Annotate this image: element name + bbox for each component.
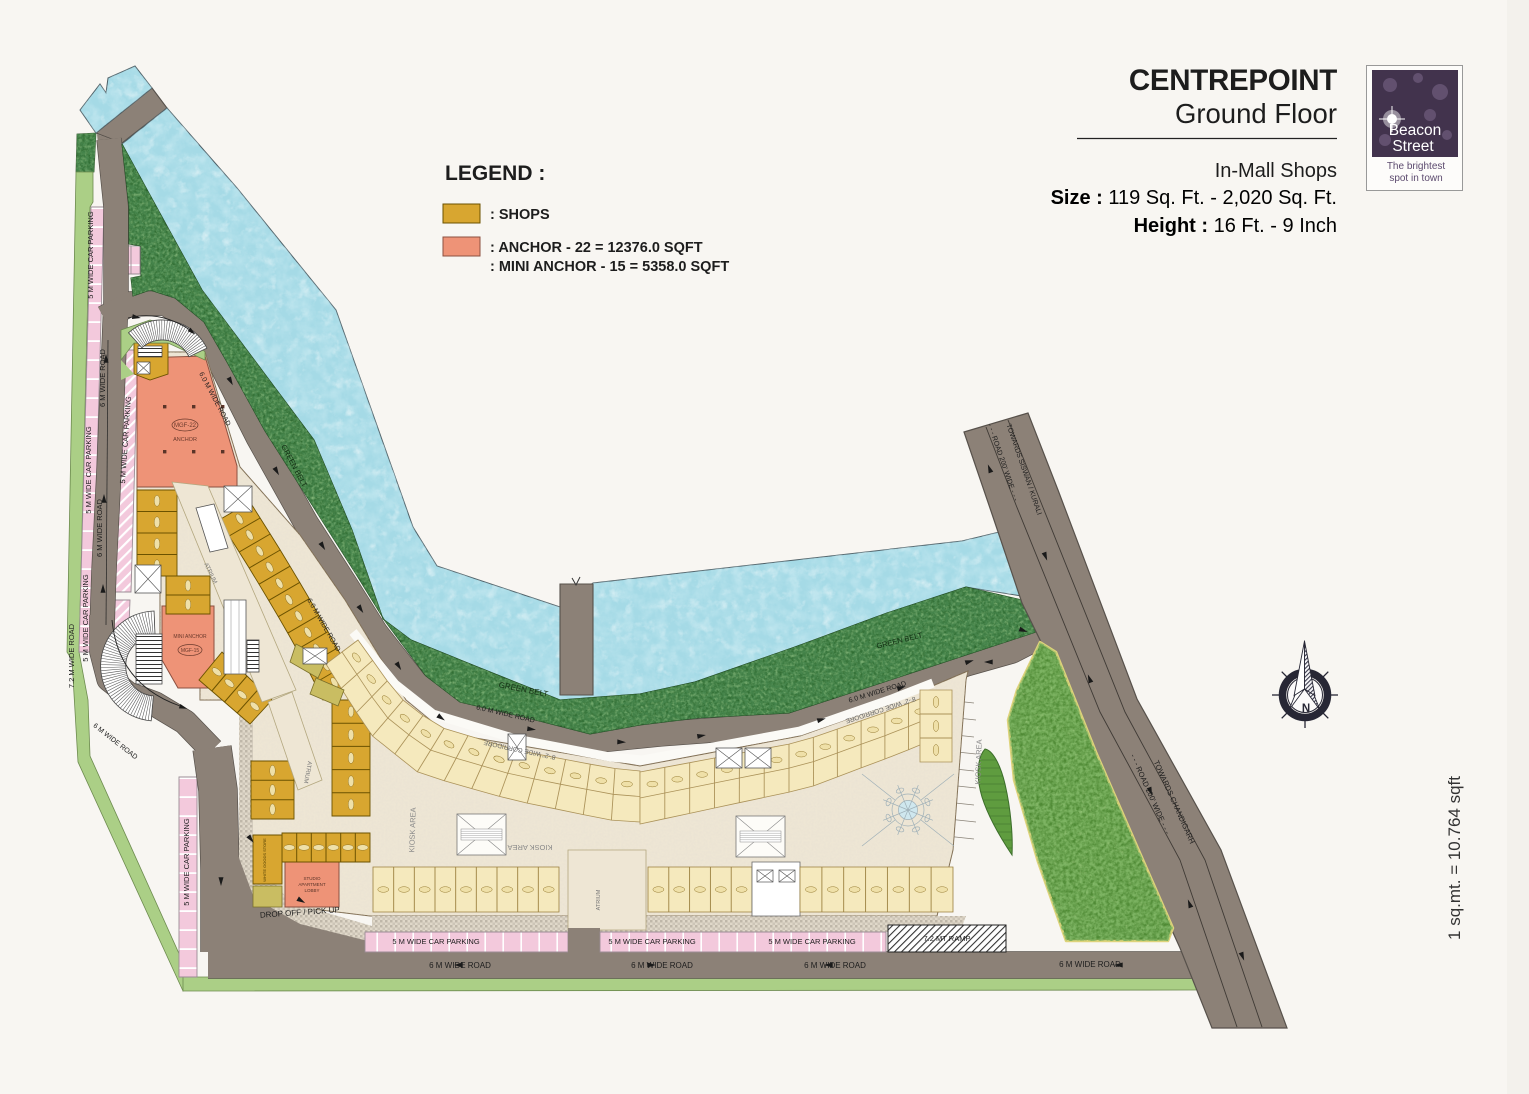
svg-text:6 M WIDE ROAD: 6 M WIDE ROAD bbox=[98, 348, 107, 407]
svg-text:MGF-15: MGF-15 bbox=[181, 648, 200, 654]
svg-text:: MINI ANCHOR - 15 = 5358.0 SQ: : MINI ANCHOR - 15 = 5358.0 SQFT bbox=[490, 259, 729, 275]
svg-text:5 M WIDE CAR PARKING: 5 M WIDE CAR PARKING bbox=[768, 937, 856, 946]
svg-text:MGF-22: MGF-22 bbox=[174, 423, 197, 429]
svg-text:ANCHOR: ANCHOR bbox=[173, 437, 197, 443]
svg-text:5 M WIDE CAR PARKING: 5 M WIDE CAR PARKING bbox=[392, 937, 480, 946]
svg-text:6 M WIDE ROAD: 6 M WIDE ROAD bbox=[631, 961, 693, 970]
svg-text:Beacon: Beacon bbox=[1389, 122, 1442, 139]
svg-text:spot in town: spot in town bbox=[1389, 173, 1442, 184]
svg-text:: ANCHOR - 22 = 12376.0 SQFT: : ANCHOR - 22 = 12376.0 SQFT bbox=[490, 240, 703, 256]
svg-text:STUDIO: STUDIO bbox=[303, 876, 321, 881]
svg-text:N: N bbox=[1302, 703, 1310, 715]
svg-text:6 M WIDE ROAD: 6 M WIDE ROAD bbox=[1059, 960, 1121, 969]
svg-text:WHITE GOODS STORE: WHITE GOODS STORE bbox=[262, 838, 267, 882]
svg-text:5 M WIDE CAR PARKING: 5 M WIDE CAR PARKING bbox=[84, 426, 93, 514]
svg-text:CENTREPOINT: CENTREPOINT bbox=[1129, 64, 1337, 97]
svg-text:6 M WIDE ROAD: 6 M WIDE ROAD bbox=[804, 961, 866, 970]
svg-text:LOBBY: LOBBY bbox=[304, 888, 319, 893]
svg-text:Ground Floor: Ground Floor bbox=[1175, 98, 1337, 129]
svg-text:MINI ANCHOR: MINI ANCHOR bbox=[173, 634, 207, 640]
svg-text:KIOSK AREA: KIOSK AREA bbox=[507, 843, 552, 852]
svg-text:1 sq.mt. = 10.764 sqft: 1 sq.mt. = 10.764 sqft bbox=[1445, 776, 1464, 940]
svg-text:6 M WIDE ROAD: 6 M WIDE ROAD bbox=[429, 961, 491, 970]
svg-text:In-Mall Shops: In-Mall Shops bbox=[1215, 160, 1337, 182]
svg-text:7.2 MT RAMP: 7.2 MT RAMP bbox=[924, 934, 971, 943]
svg-text:LEGEND :: LEGEND : bbox=[445, 162, 545, 185]
svg-text:5 M WIDE CAR PARKING: 5 M WIDE CAR PARKING bbox=[182, 818, 191, 906]
svg-text:The brightest: The brightest bbox=[1387, 161, 1446, 172]
svg-text:6 M WIDE ROAD: 6 M WIDE ROAD bbox=[95, 498, 104, 557]
svg-text:5 M WIDE CAR PARKING: 5 M WIDE CAR PARKING bbox=[81, 574, 90, 662]
svg-text:Height : 16 Ft. - 9 Inch: Height : 16 Ft. - 9 Inch bbox=[1134, 215, 1337, 237]
svg-text:: SHOPS: : SHOPS bbox=[490, 207, 550, 223]
svg-text:KIOSK AREA: KIOSK AREA bbox=[973, 739, 984, 784]
svg-text:5 M WIDE CAR PARKING: 5 M WIDE CAR PARKING bbox=[86, 211, 95, 299]
svg-text:7.2 M WIDE ROAD: 7.2 M WIDE ROAD bbox=[67, 623, 76, 688]
svg-text:APARTMENT: APARTMENT bbox=[298, 882, 326, 887]
svg-text:Street: Street bbox=[1392, 138, 1434, 155]
svg-text:KIOSK AREA: KIOSK AREA bbox=[407, 807, 418, 852]
svg-text:5 M WIDE CAR PARKING: 5 M WIDE CAR PARKING bbox=[608, 937, 696, 946]
svg-text:Size : 119 Sq. Ft. - 2,020 Sq.: Size : 119 Sq. Ft. - 2,020 Sq. Ft. bbox=[1051, 187, 1337, 209]
svg-text:ATRIUM: ATRIUM bbox=[596, 889, 602, 910]
